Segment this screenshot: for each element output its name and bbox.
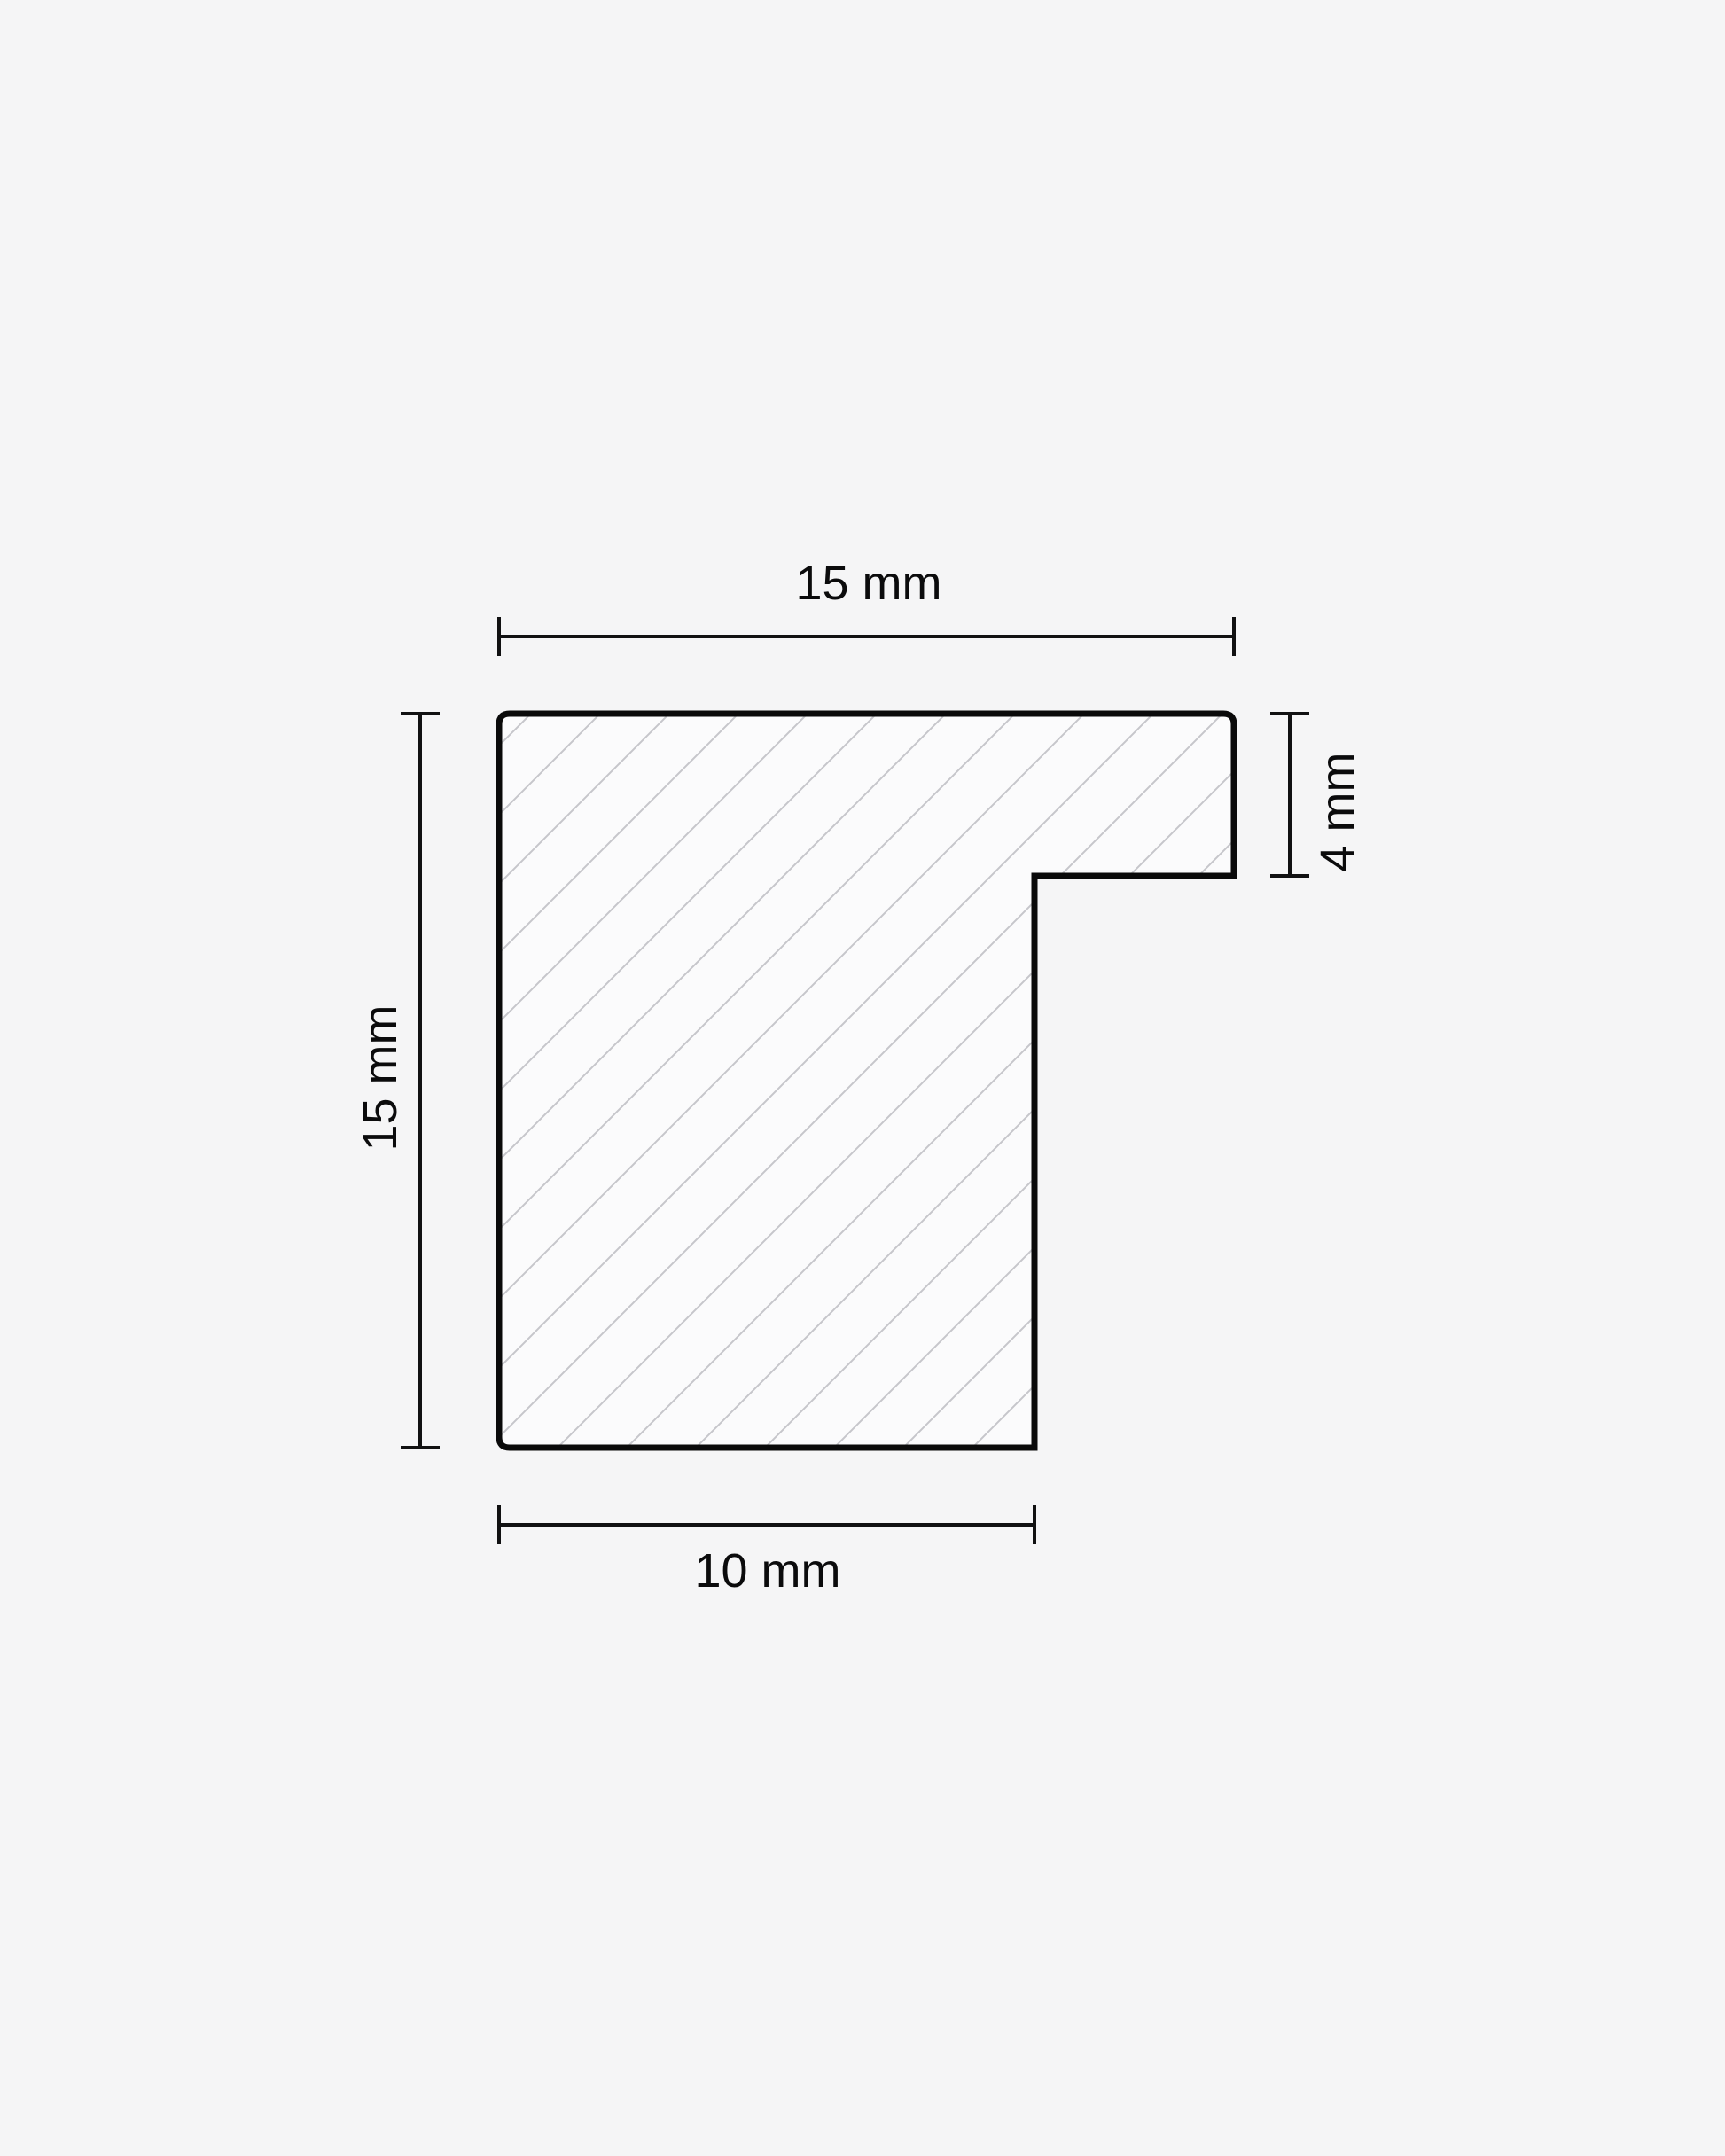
dimension-left-label: 15 mm [354,1004,407,1151]
dimension-top-label: 15 mm [795,557,941,610]
profile-diagram: 15 mm 15 mm 4 mm 10 mm [0,0,1725,2156]
dimension-bottom-label: 10 mm [694,1544,840,1597]
dimension-right-label: 4 mm [1311,753,1364,872]
dimension-top: 15 mm [499,557,1234,656]
page-background: 15 mm 15 mm 4 mm 10 mm [0,0,1725,2156]
profile-cross-section [499,714,1234,1448]
dimension-bottom: 10 mm [499,1505,1034,1597]
dimension-left: 15 mm [354,714,440,1448]
dimension-right: 4 mm [1270,714,1364,876]
